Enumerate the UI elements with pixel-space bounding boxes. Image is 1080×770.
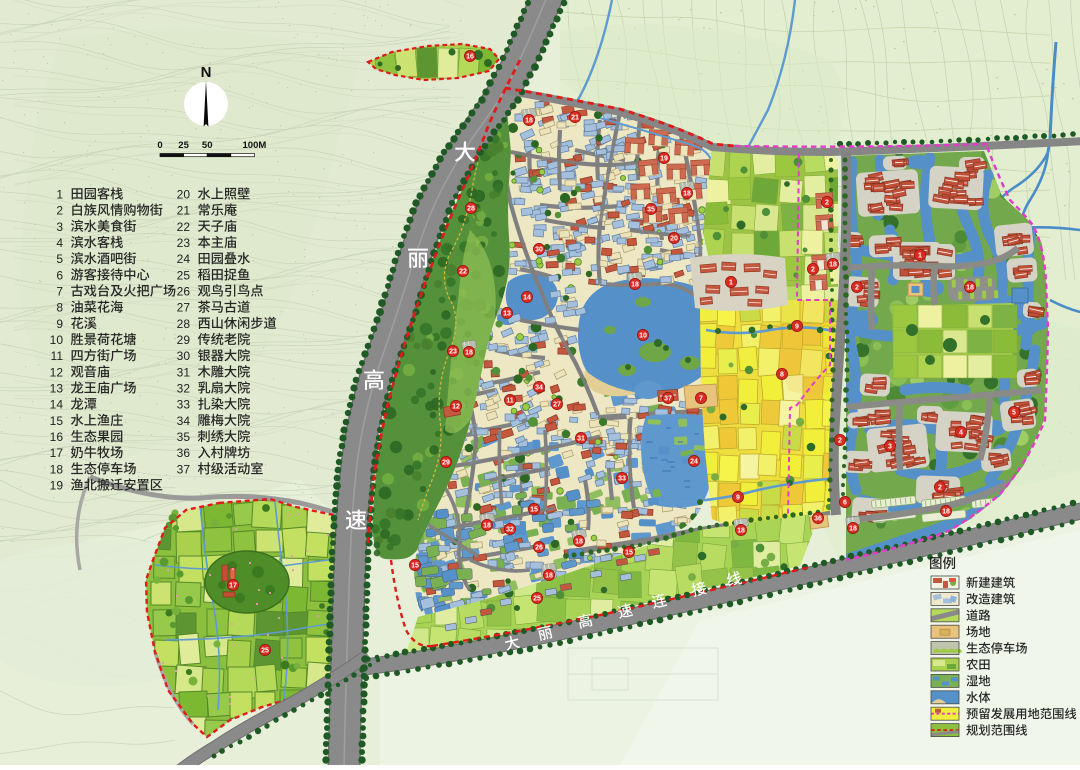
svg-text:18: 18 <box>829 261 837 268</box>
svg-text:2: 2 <box>825 199 829 206</box>
svg-text:36: 36 <box>814 515 822 522</box>
svg-text:32: 32 <box>177 382 191 396</box>
svg-text:23: 23 <box>449 348 457 355</box>
svg-text:18: 18 <box>737 527 745 534</box>
svg-text:20: 20 <box>177 188 191 202</box>
svg-text:9: 9 <box>56 317 63 331</box>
svg-text:13: 13 <box>503 310 511 317</box>
svg-text:26: 26 <box>535 544 543 551</box>
svg-text:29: 29 <box>442 459 450 466</box>
svg-text:N: N <box>201 64 212 81</box>
svg-text:50: 50 <box>202 140 213 151</box>
svg-text:17: 17 <box>50 446 64 460</box>
svg-text:12: 12 <box>452 403 460 410</box>
svg-text:8: 8 <box>56 301 63 315</box>
svg-text:32: 32 <box>506 526 514 533</box>
svg-text:8: 8 <box>780 371 784 378</box>
svg-text:16: 16 <box>50 430 64 444</box>
svg-text:23: 23 <box>177 236 191 250</box>
svg-text:3: 3 <box>888 443 892 450</box>
svg-text:10: 10 <box>50 333 64 347</box>
svg-text:18: 18 <box>631 281 639 288</box>
svg-text:6: 6 <box>56 268 63 282</box>
svg-text:37: 37 <box>664 395 672 402</box>
svg-text:18: 18 <box>545 572 553 579</box>
svg-text:25: 25 <box>178 140 189 151</box>
svg-text:35: 35 <box>177 430 191 444</box>
svg-text:12: 12 <box>50 365 64 379</box>
svg-text:35: 35 <box>647 206 655 213</box>
svg-text:36: 36 <box>177 446 191 460</box>
svg-text:18: 18 <box>465 349 473 356</box>
svg-text:5: 5 <box>56 252 63 266</box>
svg-text:28: 28 <box>177 317 191 331</box>
svg-text:15: 15 <box>625 549 633 556</box>
svg-text:100M: 100M <box>243 140 267 151</box>
svg-text:31: 31 <box>177 365 191 379</box>
svg-text:2: 2 <box>811 266 815 273</box>
svg-text:18: 18 <box>483 522 491 529</box>
svg-text:18: 18 <box>525 117 533 124</box>
svg-text:2: 2 <box>56 204 63 218</box>
svg-text:34: 34 <box>535 384 543 391</box>
svg-text:1: 1 <box>56 188 63 202</box>
svg-text:7: 7 <box>56 285 63 299</box>
svg-text:1: 1 <box>918 252 922 259</box>
svg-text:14: 14 <box>50 398 64 412</box>
svg-text:18: 18 <box>683 190 691 197</box>
svg-text:27: 27 <box>177 301 191 315</box>
svg-text:16: 16 <box>466 53 474 60</box>
svg-text:0: 0 <box>157 140 162 151</box>
svg-text:20: 20 <box>670 235 678 242</box>
svg-text:18: 18 <box>942 508 950 515</box>
svg-text:24: 24 <box>177 252 191 266</box>
svg-text:25: 25 <box>533 595 541 602</box>
svg-text:15: 15 <box>411 562 419 569</box>
svg-text:25: 25 <box>177 268 191 282</box>
svg-text:37: 37 <box>177 462 191 476</box>
svg-text:29: 29 <box>177 333 191 347</box>
svg-text:22: 22 <box>177 220 191 234</box>
svg-text:33: 33 <box>618 475 626 482</box>
svg-text:30: 30 <box>535 246 543 253</box>
svg-text:14: 14 <box>523 294 531 301</box>
svg-text:11: 11 <box>51 349 64 363</box>
svg-text:2: 2 <box>938 484 942 491</box>
svg-text:26: 26 <box>177 285 191 299</box>
svg-text:9: 9 <box>795 323 799 330</box>
svg-text:22: 22 <box>459 268 467 275</box>
svg-text:27: 27 <box>553 401 561 408</box>
svg-text:3: 3 <box>56 220 63 234</box>
svg-text:19: 19 <box>50 479 64 493</box>
svg-text:24: 24 <box>690 458 698 465</box>
svg-text:34: 34 <box>177 414 191 428</box>
svg-text:13: 13 <box>50 382 64 396</box>
svg-text:30: 30 <box>177 349 191 363</box>
svg-text:9: 9 <box>736 494 740 501</box>
svg-text:7: 7 <box>699 395 703 402</box>
svg-text:18: 18 <box>575 538 583 545</box>
svg-text:4: 4 <box>56 236 63 250</box>
svg-text:21: 21 <box>177 204 191 218</box>
svg-text:6: 6 <box>843 499 847 506</box>
svg-text:19: 19 <box>660 155 668 162</box>
svg-text:15: 15 <box>530 506 538 513</box>
svg-text:31: 31 <box>577 435 585 442</box>
svg-text:18: 18 <box>849 525 857 532</box>
svg-text:28: 28 <box>467 205 475 212</box>
svg-text:25: 25 <box>261 647 269 654</box>
svg-text:18: 18 <box>966 284 974 291</box>
svg-text:18: 18 <box>50 462 64 476</box>
svg-text:4: 4 <box>959 429 963 436</box>
svg-text:2: 2 <box>855 284 859 291</box>
svg-text:21: 21 <box>571 114 579 121</box>
svg-text:11: 11 <box>506 397 514 404</box>
svg-text:33: 33 <box>177 398 191 412</box>
svg-text:17: 17 <box>229 582 237 589</box>
svg-text:15: 15 <box>50 414 64 428</box>
svg-text:2: 2 <box>838 437 842 444</box>
svg-text:10: 10 <box>639 332 647 339</box>
svg-text:1: 1 <box>729 279 733 286</box>
svg-text:5: 5 <box>1012 409 1016 416</box>
